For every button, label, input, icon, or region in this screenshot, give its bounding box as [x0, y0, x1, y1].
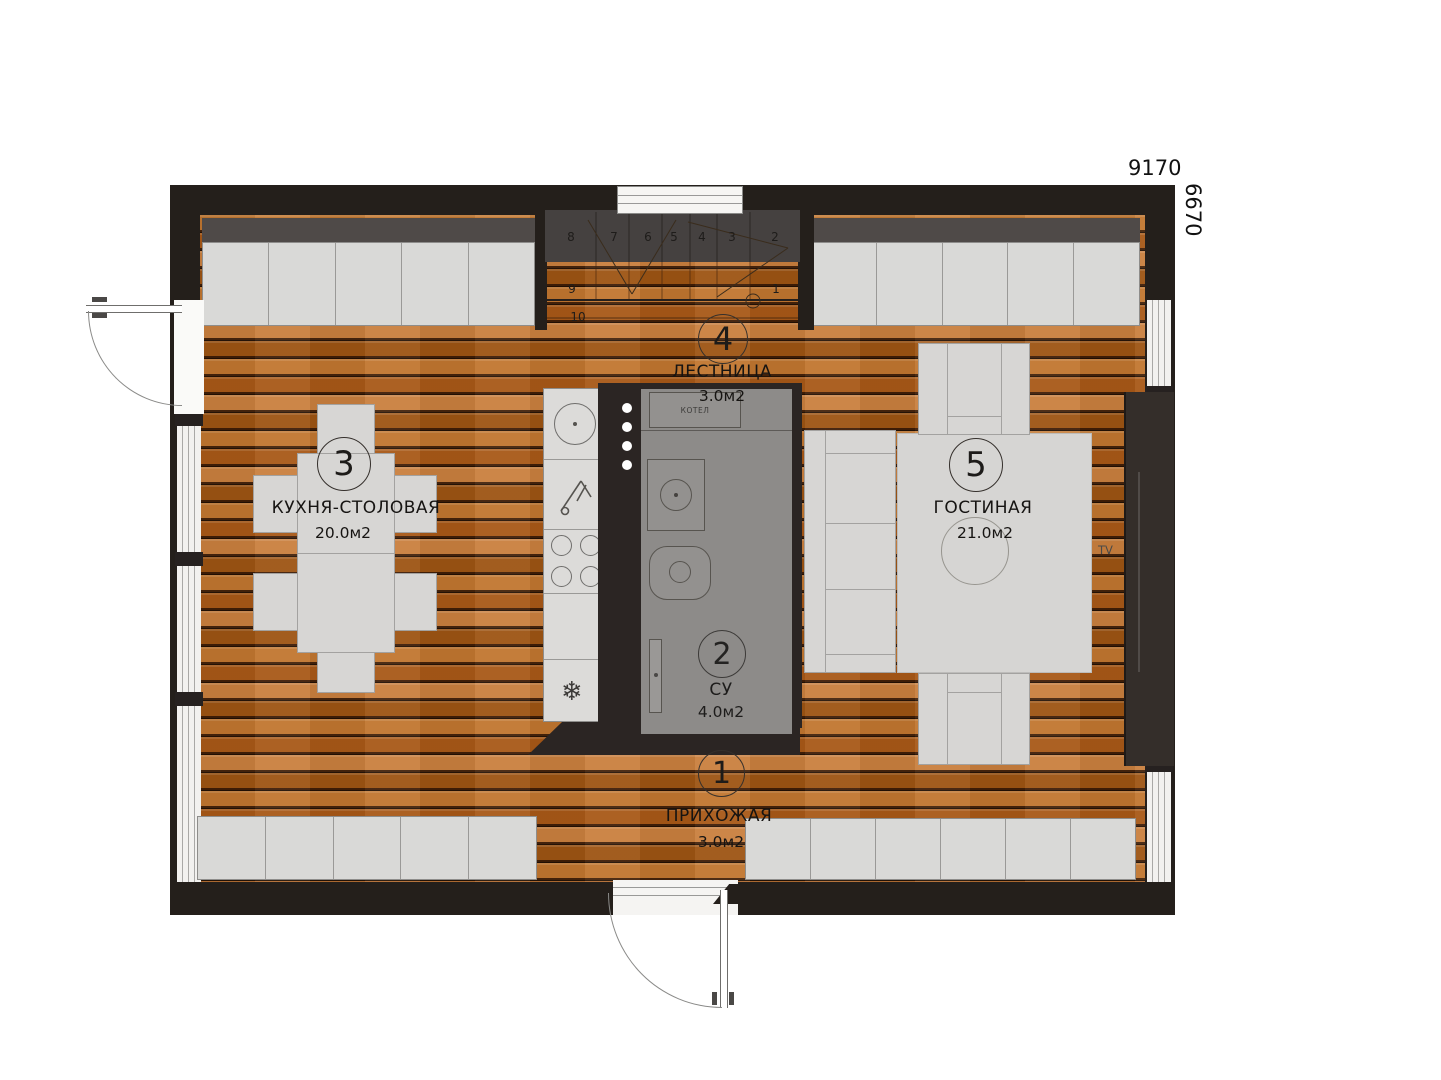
cabinet-door: [203, 243, 269, 325]
cabinet-door: [876, 819, 941, 879]
entrance-door-swing-arc: [608, 893, 722, 1008]
cabinet-row-bottom-right: [745, 818, 1136, 880]
bathroom-divider: [641, 430, 792, 431]
table-divider: [298, 553, 394, 554]
stair-step-number: 7: [610, 230, 618, 244]
wall-dot: [622, 403, 632, 413]
left-door-handle[interactable]: [92, 297, 107, 302]
sofa-cushion-line: [825, 453, 895, 454]
cabinet-door: [469, 243, 534, 325]
stove-burner: [551, 535, 572, 556]
dimension-width: 9170: [1128, 156, 1181, 180]
armchair-seat-line: [947, 416, 1002, 417]
cabinet-counter-shadow: [202, 218, 535, 242]
cabinet-door: [941, 819, 1006, 879]
toilet-bowl: [669, 561, 691, 583]
wall-dot: [622, 422, 632, 432]
cabinet-door: [1008, 243, 1074, 325]
cabinet-door: [811, 819, 876, 879]
wall-dot: [622, 460, 632, 470]
stair-step-number: 6: [644, 230, 652, 244]
cabinet-door: [401, 817, 469, 879]
tv-label: TV: [1098, 543, 1113, 557]
stair-step-number: 10: [570, 310, 585, 324]
room-number-kitchen: 3: [317, 437, 371, 491]
room-area-staircase: 3.0м2: [699, 387, 745, 405]
cabinet-door: [336, 243, 402, 325]
snowflake-icon: ❄: [561, 677, 583, 707]
armchair-armrest-line: [947, 674, 948, 764]
boiler-label: КОТЕЛ: [681, 406, 710, 415]
cabinet-doors: [810, 242, 1140, 326]
sofa: [804, 430, 896, 673]
cabinet-door: [1074, 243, 1139, 325]
cabinet-door: [266, 817, 334, 879]
window-mullion: [175, 412, 203, 426]
room-name-living: ГОСТИНАЯ: [934, 498, 1033, 518]
sink-drain-dot: [573, 422, 577, 426]
cabinet-door: [402, 243, 468, 325]
sofa-cushion-line: [825, 523, 895, 524]
cabinet-door: [334, 817, 402, 879]
room-area-bathroom: 4.0м2: [698, 703, 744, 721]
room-name-bathroom: СУ: [709, 680, 732, 700]
wall-filler-right-of-stairs: [798, 212, 814, 330]
room-number-hallway: 1: [698, 750, 745, 797]
room-area-kitchen: 20.0м2: [315, 524, 371, 542]
room-name-kitchen: КУХНЯ-СТОЛОВАЯ: [272, 498, 441, 518]
room-area-living: 21.0м2: [957, 524, 1013, 542]
staircase-drawing: [545, 210, 800, 322]
sofa-cushion-line: [825, 589, 895, 590]
stair-step-number: 8: [567, 230, 575, 244]
armchair-armrest-line: [947, 344, 948, 434]
cabinet-door: [269, 243, 335, 325]
armchair-seat-line: [947, 692, 1002, 693]
tv-console: [1124, 392, 1174, 766]
stair-step-number: 1: [772, 282, 780, 296]
room-area-hallway: 3.0м2: [698, 833, 744, 851]
cabinet-door: [469, 817, 536, 879]
wall-dot: [622, 441, 632, 451]
room-name-staircase: ЛЕСТНИЦА: [672, 362, 772, 382]
window-mullion: [175, 692, 203, 706]
stair-step-number: 5: [670, 230, 678, 244]
stove-burner: [551, 566, 572, 587]
armchair-top: [918, 343, 1030, 435]
cabinet-door: [746, 819, 811, 879]
cabinet-row-top-right: [810, 218, 1140, 330]
cabinet-door: [1006, 819, 1071, 879]
window-mullion: [175, 552, 203, 566]
cabinet-door: [1071, 819, 1135, 879]
armchair-armrest-line: [1001, 674, 1002, 764]
room-name-hallway: ПРИХОЖАЯ: [666, 806, 773, 826]
entrance-door-handle[interactable]: [729, 992, 734, 1005]
tv-screen-line: [1138, 472, 1140, 672]
stair-step-number: 4: [698, 230, 706, 244]
faucet-icon: [553, 471, 597, 519]
window-top: [617, 186, 743, 214]
cabinet-door: [198, 817, 266, 879]
stair-step-number: 3: [728, 230, 736, 244]
room-number-living: 5: [949, 438, 1003, 492]
cabinet-row-bottom-left: [197, 816, 537, 880]
room-number-staircase: 4: [698, 314, 748, 364]
washing-machine-dot: [674, 493, 678, 497]
room-number-bathroom: 2: [698, 630, 746, 678]
stair-step-number: 2: [771, 230, 779, 244]
sofa-back-line: [825, 431, 826, 672]
armchair-armrest-line: [1001, 344, 1002, 434]
cabinet-row-top-left: [202, 218, 535, 330]
stair-step-number: 9: [568, 282, 576, 296]
sofa-cushion-line: [825, 654, 895, 655]
bathroom-door-handle: [654, 673, 658, 677]
armchair-bottom: [918, 673, 1030, 765]
floor-plan-canvas: 8 7 6 5 4 3 2 9 1 10 TV: [0, 0, 1441, 1080]
cabinet-door: [943, 243, 1009, 325]
dimension-height: 6670: [1181, 183, 1205, 236]
cabinet-door: [877, 243, 943, 325]
cabinet-door: [811, 243, 877, 325]
cabinet-counter-shadow: [810, 218, 1140, 242]
cabinet-doors: [202, 242, 535, 326]
left-door-swing-arc: [88, 311, 182, 406]
